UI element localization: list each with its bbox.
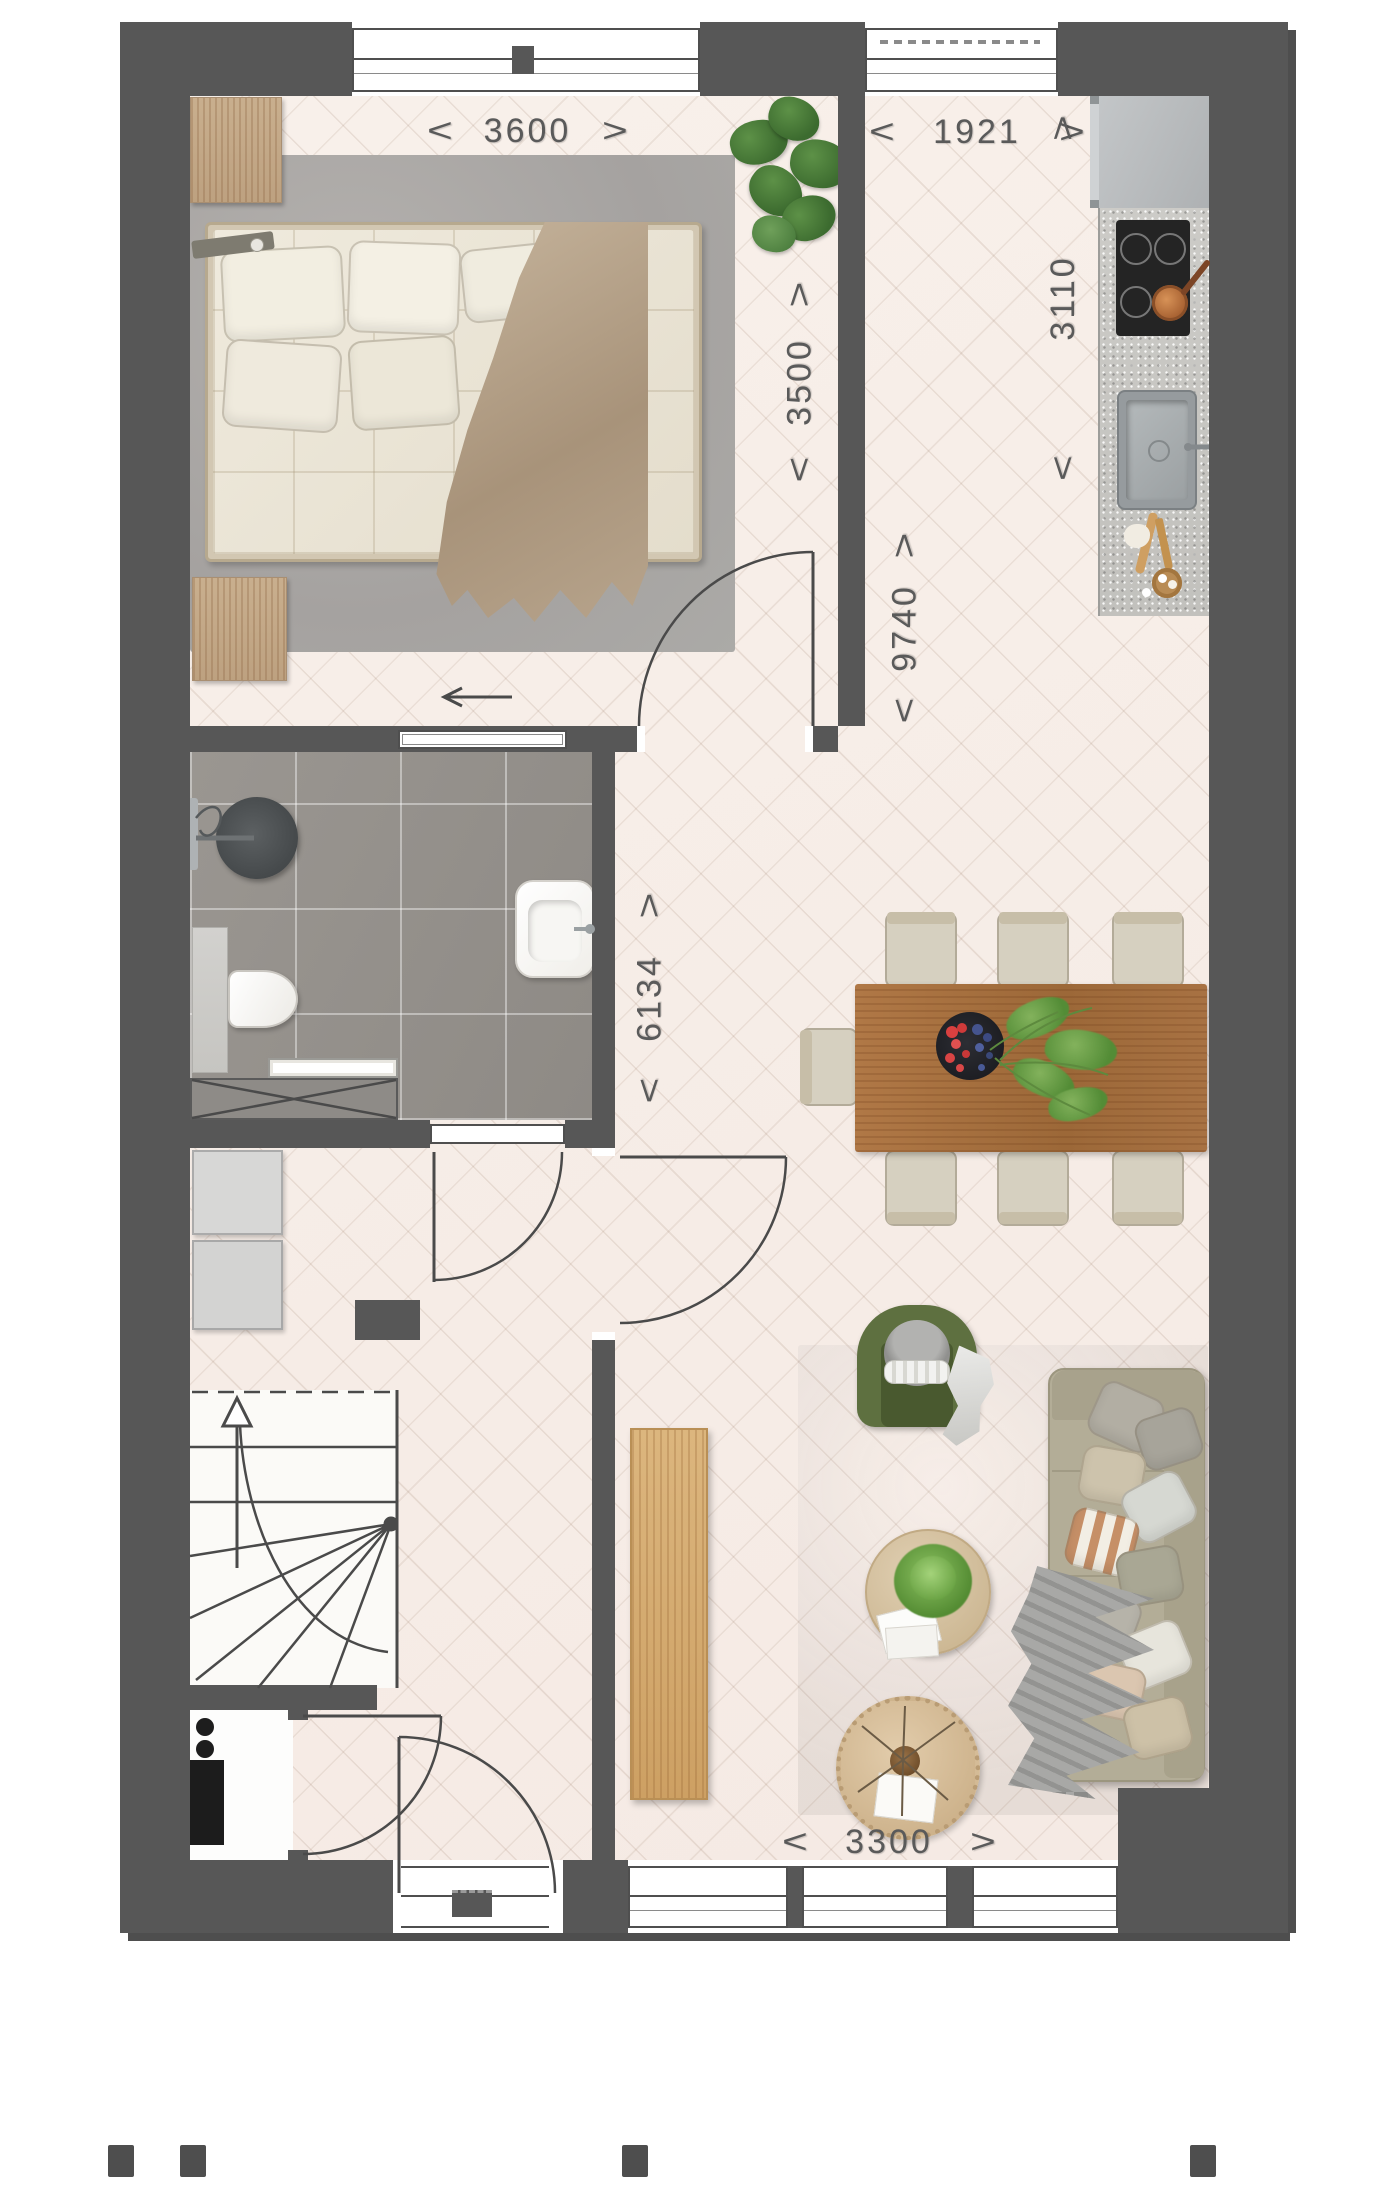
dim-arrow-left: < — [782, 1823, 808, 1862]
floor-plan: < 3600 > < 1921 > < 3500 > < 3110 > < 97… — [0, 0, 1393, 2200]
shower-hose — [196, 807, 221, 836]
dim-arrow-right: > — [970, 1823, 996, 1862]
stairs-winders — [190, 1524, 391, 1688]
dim-value: 3600 — [484, 112, 572, 151]
dim-arrow-left: < — [885, 698, 924, 724]
washbasin-faucet-head — [585, 924, 595, 934]
dim-arrow-right: > — [630, 893, 669, 919]
stairs-tread — [190, 1447, 397, 1502]
dim-kitchen-zone-depth: < 3110 > — [1043, 118, 1083, 478]
dim-arrow-left: < — [869, 113, 895, 152]
bedroom-arrow — [444, 688, 512, 706]
decor-sticks — [858, 1706, 955, 1816]
dim-arrow-left: < — [1044, 455, 1083, 481]
dim-arrow-left: < — [630, 1078, 669, 1104]
dim-arrow-right: > — [1044, 115, 1083, 141]
dim-living-width: < 3300 > — [785, 1822, 993, 1862]
dim-value: 3110 — [1044, 255, 1083, 340]
dim-value: 3300 — [845, 1823, 933, 1862]
dim-living-zone-depth: < 6134 > — [630, 896, 670, 1101]
dim-arrow-right: > — [885, 533, 924, 559]
stairs-up-arrowhead — [223, 1398, 251, 1426]
pan-handle — [1184, 263, 1207, 292]
dim-total-depth: < 9740 > — [885, 536, 925, 721]
stairs-newel — [385, 1518, 397, 1530]
dim-value: 9740 — [885, 584, 924, 672]
dim-arrow-right: > — [780, 282, 819, 308]
hall-door-swing — [620, 1157, 786, 1323]
dim-bedroom-depth: < 3500 > — [780, 285, 820, 480]
dim-value: 3500 — [780, 338, 819, 426]
dim-value: 1921 — [933, 113, 1021, 152]
dim-arrow-left: < — [427, 112, 453, 151]
closet-door-swing — [303, 1716, 441, 1854]
plant-stems — [990, 1008, 1108, 1115]
dim-value: 6134 — [630, 954, 669, 1042]
kitchen-faucet-head — [1184, 443, 1192, 451]
dim-arrow-left: < — [780, 457, 819, 483]
bedroom-door-swing — [639, 552, 813, 726]
dim-bedroom-width: < 3600 > — [430, 111, 625, 151]
bathroom-door-swing — [434, 1152, 562, 1280]
dim-arrow-right: > — [602, 112, 628, 151]
hatch-cross — [192, 1080, 396, 1118]
front-door-swing — [399, 1737, 555, 1893]
plan-linework — [0, 0, 1393, 2200]
